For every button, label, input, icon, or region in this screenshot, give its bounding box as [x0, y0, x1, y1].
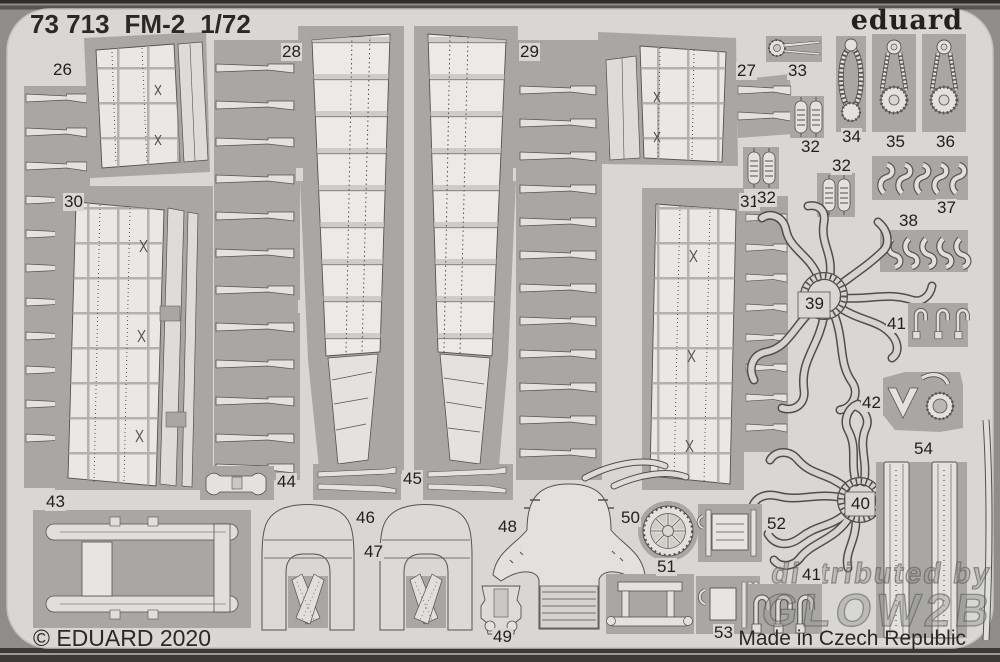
- photoetch-sheet-photo: 73 713FM-21/72 eduard © EDUARD 2020 Made…: [0, 0, 1000, 662]
- part-label-42: 42: [861, 394, 882, 412]
- part-label-44: 44: [276, 473, 297, 491]
- watermark-line2: GLOW2B: [759, 589, 997, 633]
- part-label-28: 28: [281, 43, 302, 61]
- part-42-bracket-ring: [883, 372, 963, 432]
- part-label-33: 33: [787, 62, 808, 80]
- part-label-41b: 41: [801, 566, 822, 584]
- sheet-title: 73 713FM-21/72: [30, 9, 266, 40]
- part-label-34: 34: [841, 128, 862, 146]
- part-33-pulley-rods: [766, 36, 822, 62]
- part-label-53: 53: [713, 624, 734, 642]
- part-label-36: 36: [935, 133, 956, 151]
- part-label-50: 50: [620, 509, 641, 527]
- part-label-35: 35: [885, 133, 906, 151]
- part-label-43: 43: [45, 493, 66, 511]
- scale: 1/72: [200, 9, 251, 39]
- part-label-54: 54: [913, 440, 934, 458]
- part-label-30: 30: [63, 193, 84, 211]
- part-label-37: 37: [936, 199, 957, 217]
- part-label-26: 26: [52, 61, 73, 79]
- part-label-32b: 32: [756, 189, 777, 207]
- part-35-chain-gear-loop: [872, 34, 916, 132]
- part-38-s-hooks: [880, 230, 968, 272]
- part-label-51: 51: [656, 558, 677, 576]
- catalog-number: 73 713: [30, 9, 110, 39]
- part-label-27: 27: [736, 62, 757, 80]
- part-label-39: 39: [804, 295, 825, 313]
- part-51-frame-bracket: [606, 574, 694, 634]
- part-34-chain-loop: [836, 36, 866, 132]
- part-50-spoked-wheel: [638, 501, 698, 561]
- part-43-canopy-rails: [33, 510, 251, 628]
- part-26-wheel-bay-panel: [84, 32, 210, 178]
- part-label-40: 40: [850, 495, 871, 513]
- part-label-29: 29: [519, 43, 540, 61]
- part-41a-hook-brackets: [908, 303, 968, 347]
- eduard-logo: eduard: [851, 5, 963, 36]
- part-label-48: 48: [497, 518, 518, 536]
- hinge-blades-right-of-31: [740, 196, 788, 452]
- part-label-46: 46: [355, 509, 376, 527]
- part-52-mount-bracket: [698, 504, 762, 562]
- part-44-hinge-bar: [200, 466, 274, 500]
- part-label-49: 49: [492, 628, 513, 646]
- part-label-32c: 32: [831, 157, 852, 175]
- copyright-text: © EDUARD 2020: [33, 625, 211, 652]
- part-label-32a: 32: [800, 138, 821, 156]
- part-30-wheel-bay-panel: [55, 186, 213, 490]
- part-32b-slotted-ovals: [743, 147, 779, 189]
- distributor-watermark: distributed by GLOW2B: [759, 561, 1000, 632]
- part-label-45: 45: [402, 470, 423, 488]
- part-32a-slotted-ovals: [790, 96, 824, 138]
- hinge-blades-right-of-29: [516, 40, 602, 480]
- part-31-wheel-bay-panel: [642, 188, 744, 490]
- model-name: FM-2: [125, 9, 186, 39]
- part-label-47: 47: [363, 543, 384, 561]
- part-label-52: 52: [766, 515, 787, 533]
- part-36-chain-gear-loop: [922, 34, 966, 132]
- part-label-41a: 41: [886, 315, 907, 333]
- hinge-blades-left-of-28: [214, 40, 300, 480]
- part-label-38: 38: [898, 212, 919, 230]
- part-37-s-hooks: [872, 156, 968, 200]
